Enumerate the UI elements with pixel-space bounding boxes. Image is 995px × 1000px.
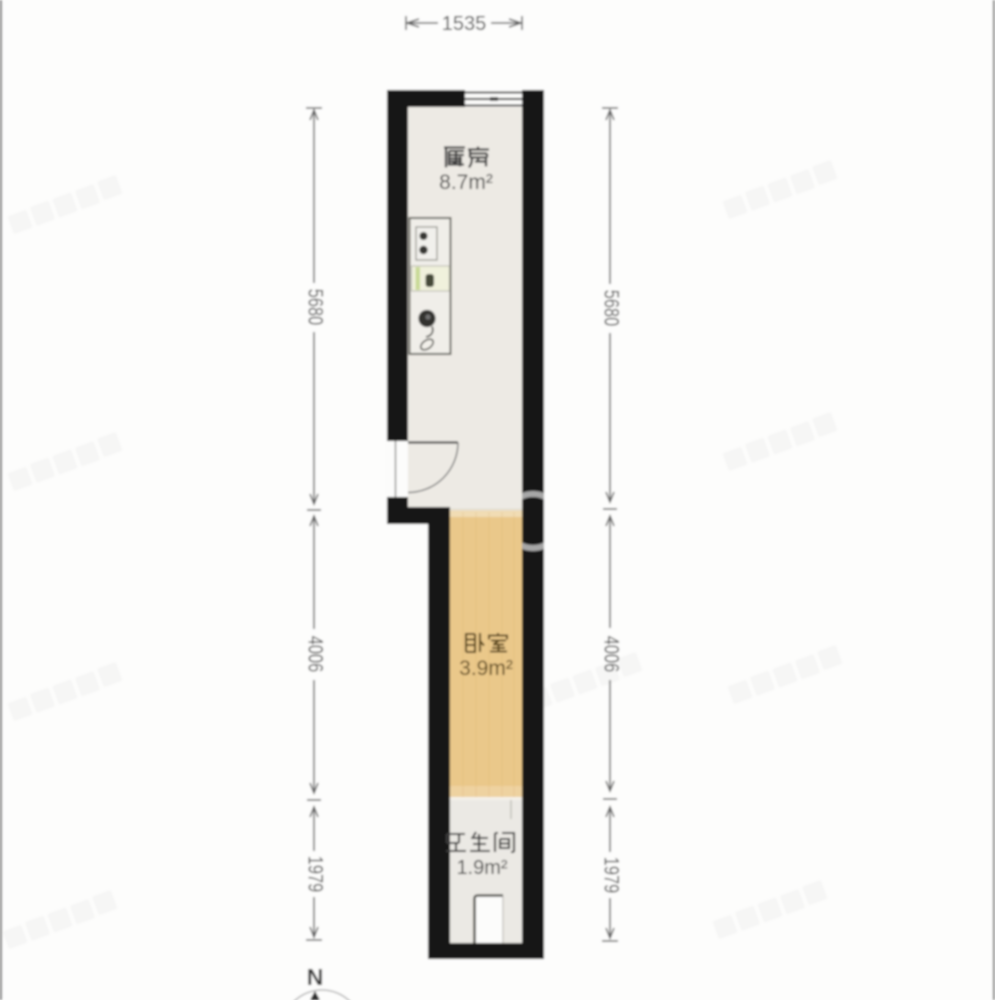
svg-text:1979: 1979 [600,857,623,893]
svg-text:1535: 1535 [442,13,487,35]
svg-text:1979: 1979 [304,856,327,892]
svg-text:N: N [307,964,324,990]
svg-text:3.9m²: 3.9m² [459,657,513,680]
svg-text:4006: 4006 [304,636,327,672]
svg-text:8.7m²: 8.7m² [439,171,493,194]
svg-text:5680: 5680 [304,289,327,325]
svg-text:1.9m²: 1.9m² [456,857,507,879]
svg-text:5680: 5680 [600,290,623,326]
svg-text:4006: 4006 [600,636,623,672]
